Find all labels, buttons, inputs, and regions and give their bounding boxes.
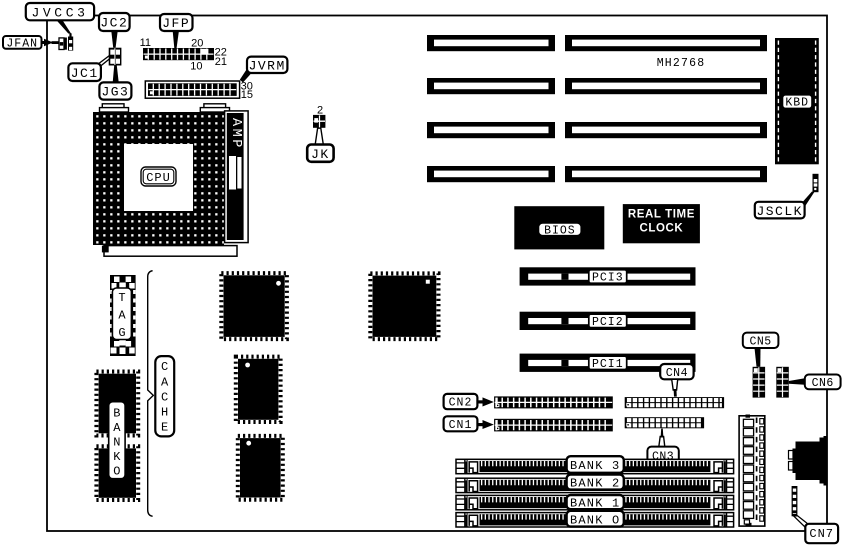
svg-text:CPU: CPU [146, 171, 171, 185]
svg-text:10: 10 [190, 60, 202, 72]
svg-text:JC2: JC2 [100, 16, 128, 31]
svg-text:KBD: KBD [785, 97, 809, 110]
svg-text:JFP: JFP [162, 16, 190, 31]
svg-text:BANK 3: BANK 3 [570, 459, 620, 473]
svg-text:CLOCK: CLOCK [639, 223, 683, 235]
svg-text:H: H [161, 406, 168, 420]
svg-text:BANK O: BANK O [570, 513, 620, 527]
svg-text:JVRM: JVRM [249, 59, 286, 74]
svg-text:A: A [161, 376, 169, 390]
svg-text:B: B [113, 407, 120, 421]
svg-text:BANK 2: BANK 2 [570, 477, 620, 491]
svg-text:JSCLK: JSCLK [756, 204, 803, 219]
svg-text:20: 20 [191, 38, 203, 50]
svg-text:CN7: CN7 [809, 527, 834, 541]
svg-text:E: E [161, 421, 168, 435]
svg-text:21: 21 [215, 56, 227, 68]
svg-text:2: 2 [317, 105, 323, 117]
svg-text:MH2768: MH2768 [657, 57, 706, 70]
svg-text:JC1: JC1 [71, 66, 99, 81]
svg-text:A: A [113, 421, 121, 435]
svg-text:BIOS: BIOS [544, 225, 576, 238]
svg-text:CN4: CN4 [666, 367, 688, 380]
svg-text:JVCC3: JVCC3 [31, 5, 88, 20]
svg-text:K: K [113, 450, 121, 464]
svg-text:T: T [118, 291, 125, 305]
svg-text:JG3: JG3 [101, 85, 129, 100]
svg-text:C: C [161, 360, 168, 374]
svg-text:PCI1: PCI1 [592, 358, 624, 371]
svg-text:JK: JK [311, 147, 330, 162]
svg-text:CN1: CN1 [449, 419, 473, 432]
svg-text:REAL TIME: REAL TIME [628, 209, 695, 221]
svg-text:AMP: AMP [228, 118, 243, 150]
svg-text:O: O [113, 465, 120, 479]
svg-text:15: 15 [241, 89, 253, 101]
svg-text:G: G [118, 326, 125, 340]
svg-text:CN6: CN6 [812, 377, 834, 390]
svg-text:CN5: CN5 [749, 335, 771, 348]
svg-text:C: C [161, 391, 168, 405]
svg-text:PCI3: PCI3 [592, 272, 624, 285]
svg-text:PCI2: PCI2 [592, 316, 624, 329]
svg-text:N: N [113, 436, 120, 450]
svg-text:A: A [118, 309, 126, 323]
svg-text:BANK 1: BANK 1 [570, 497, 620, 511]
svg-text:CN2: CN2 [449, 397, 473, 410]
svg-text:JFAN: JFAN [6, 38, 38, 51]
svg-text:11: 11 [140, 37, 151, 49]
